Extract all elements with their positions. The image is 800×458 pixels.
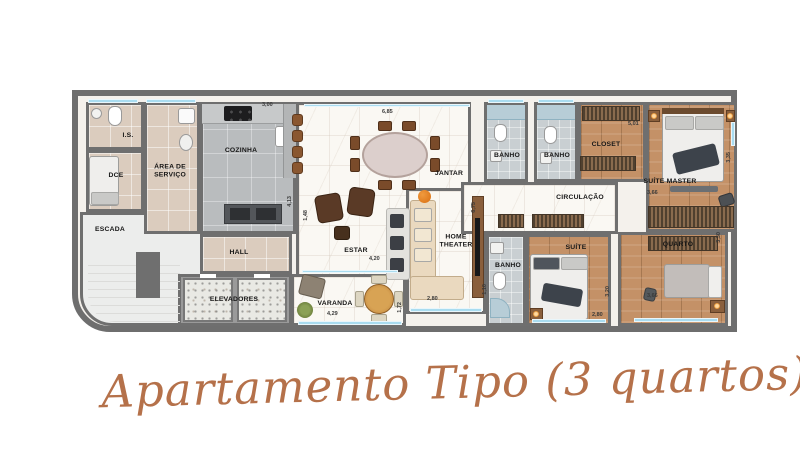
- pillow: [533, 257, 560, 270]
- dim-cozinha-v: 4,13: [287, 196, 293, 207]
- stair-core-wall: [136, 252, 160, 298]
- dim-quarto-v: 3,30: [716, 232, 722, 243]
- bar-stool: [292, 146, 303, 158]
- bar-stool: [292, 162, 303, 174]
- bed-quarto: [664, 264, 710, 298]
- dining-chair: [378, 121, 392, 131]
- label-hall: HALL: [230, 249, 249, 257]
- floor-plan: I.S. DCE ÁREA DE SERVIÇO COZINHA ESCADA …: [72, 90, 737, 332]
- label-area-servico: ÁREA DE SERVIÇO: [144, 164, 196, 181]
- label-suite: SUÍTE: [565, 244, 586, 252]
- island-cooler: [230, 208, 250, 220]
- pillow: [91, 192, 119, 205]
- label-jantar: JANTAR: [435, 170, 463, 178]
- dim-suite-master-v: 3,35: [726, 152, 732, 163]
- label-suite-master: SUÍTE MASTER: [643, 178, 696, 186]
- toilet: [108, 106, 122, 126]
- window-marker: [146, 99, 196, 103]
- dining-chair: [430, 136, 440, 150]
- wardrobe: [498, 214, 524, 228]
- balcony-chair: [355, 291, 364, 307]
- wardrobe: [532, 214, 584, 228]
- wardrobe: [582, 106, 640, 121]
- toilet: [494, 124, 507, 142]
- window-marker: [488, 99, 524, 103]
- sink: [490, 242, 504, 254]
- label-banho-suite: BANHO: [495, 262, 521, 270]
- dining-chair: [402, 121, 416, 131]
- window-marker: [731, 122, 735, 146]
- pillow: [561, 257, 588, 270]
- label-circulacao: CIRCULAÇÃO: [556, 194, 604, 202]
- dining-chair: [402, 180, 416, 190]
- shower: [537, 105, 575, 120]
- stair-treads: [88, 264, 180, 322]
- label-elevadores: ELEVADORES: [210, 296, 258, 304]
- bar-stool: [292, 130, 303, 142]
- wardrobe: [648, 206, 734, 228]
- window-marker: [88, 99, 138, 103]
- label-escada: ESCADA: [95, 226, 125, 234]
- pillow: [695, 116, 724, 130]
- window-marker: [634, 318, 718, 322]
- shower: [487, 105, 525, 120]
- orange-pouf: [418, 190, 431, 203]
- dim-estar: 4,20: [369, 256, 380, 262]
- laundry-sink: [178, 108, 195, 124]
- dim-quarto: 3,66: [647, 293, 658, 299]
- label-varanda: VARANDA: [318, 300, 353, 308]
- laundry-tub: [179, 134, 193, 151]
- dim-jantar: 6,85: [382, 109, 393, 115]
- ottoman: [334, 226, 350, 240]
- toilet: [493, 272, 506, 290]
- armchair: [314, 192, 344, 224]
- window-marker: [304, 104, 470, 107]
- label-closet: CLOSET: [592, 141, 621, 149]
- label-estar: ESTAR: [344, 247, 368, 255]
- lamp: [533, 311, 539, 317]
- label-is: I.S.: [123, 132, 134, 140]
- sofa-cushion: [390, 236, 404, 250]
- lamp: [651, 113, 657, 119]
- dim-varanda: 4,29: [327, 311, 338, 317]
- dim-home-theater: 2,80: [427, 296, 438, 302]
- toilet: [544, 126, 557, 144]
- lamp: [714, 303, 720, 309]
- window-marker: [532, 319, 606, 323]
- label-quarto: QUARTO: [663, 241, 694, 249]
- cooktop: [224, 106, 252, 121]
- dining-chair: [350, 158, 360, 172]
- wardrobe: [580, 156, 636, 171]
- label-cozinha: COZINHA: [225, 147, 257, 155]
- dining-table: [362, 132, 428, 178]
- label-dce: DCE: [109, 172, 124, 180]
- sofa-cushion: [390, 214, 404, 228]
- dim-varanda-v: 1,72: [397, 302, 403, 313]
- elevator-door: [254, 274, 270, 278]
- window-marker: [410, 308, 482, 312]
- balcony-chair: [371, 275, 387, 284]
- plant: [297, 302, 313, 318]
- dining-chair: [350, 136, 360, 150]
- label-banho-2: BANHO: [544, 152, 570, 160]
- plan-caption: Apartamento Tipo (3 quartos): [101, 347, 800, 418]
- dim-closet: 5,01: [628, 121, 639, 127]
- dim-sideboard: 1,48: [303, 210, 309, 221]
- elevator-door: [200, 274, 216, 278]
- balcony-table: [364, 284, 394, 314]
- dim-banho-suite-v: 1,10: [482, 284, 488, 295]
- sink: [91, 108, 102, 119]
- label-home-theater: HOME THEATER: [430, 234, 482, 251]
- bar-stool: [292, 114, 303, 126]
- pillow: [708, 266, 722, 298]
- pillow: [414, 208, 432, 222]
- balcony-rail-glass: [298, 321, 402, 325]
- dim-suite: 2,80: [592, 312, 603, 318]
- dining-chair: [378, 180, 392, 190]
- dim-home-theater-v: 6,75: [471, 202, 477, 213]
- window-marker: [538, 99, 574, 103]
- dim-suite-v: 3,20: [605, 286, 611, 297]
- label-banho-1: BANHO: [494, 152, 520, 160]
- page: { "caption": "Apartamento Tipo (3 quarto…: [0, 0, 800, 458]
- bed-bench: [670, 186, 718, 192]
- dim-cozinha: 3,00: [262, 102, 273, 108]
- lamp: [727, 113, 733, 119]
- pillow: [665, 116, 694, 130]
- dim-suite-master: 3,66: [647, 190, 658, 196]
- island-cooler: [256, 208, 276, 220]
- headboard: [662, 108, 724, 114]
- balcony-door-glass: [302, 270, 398, 273]
- armchair: [346, 186, 376, 217]
